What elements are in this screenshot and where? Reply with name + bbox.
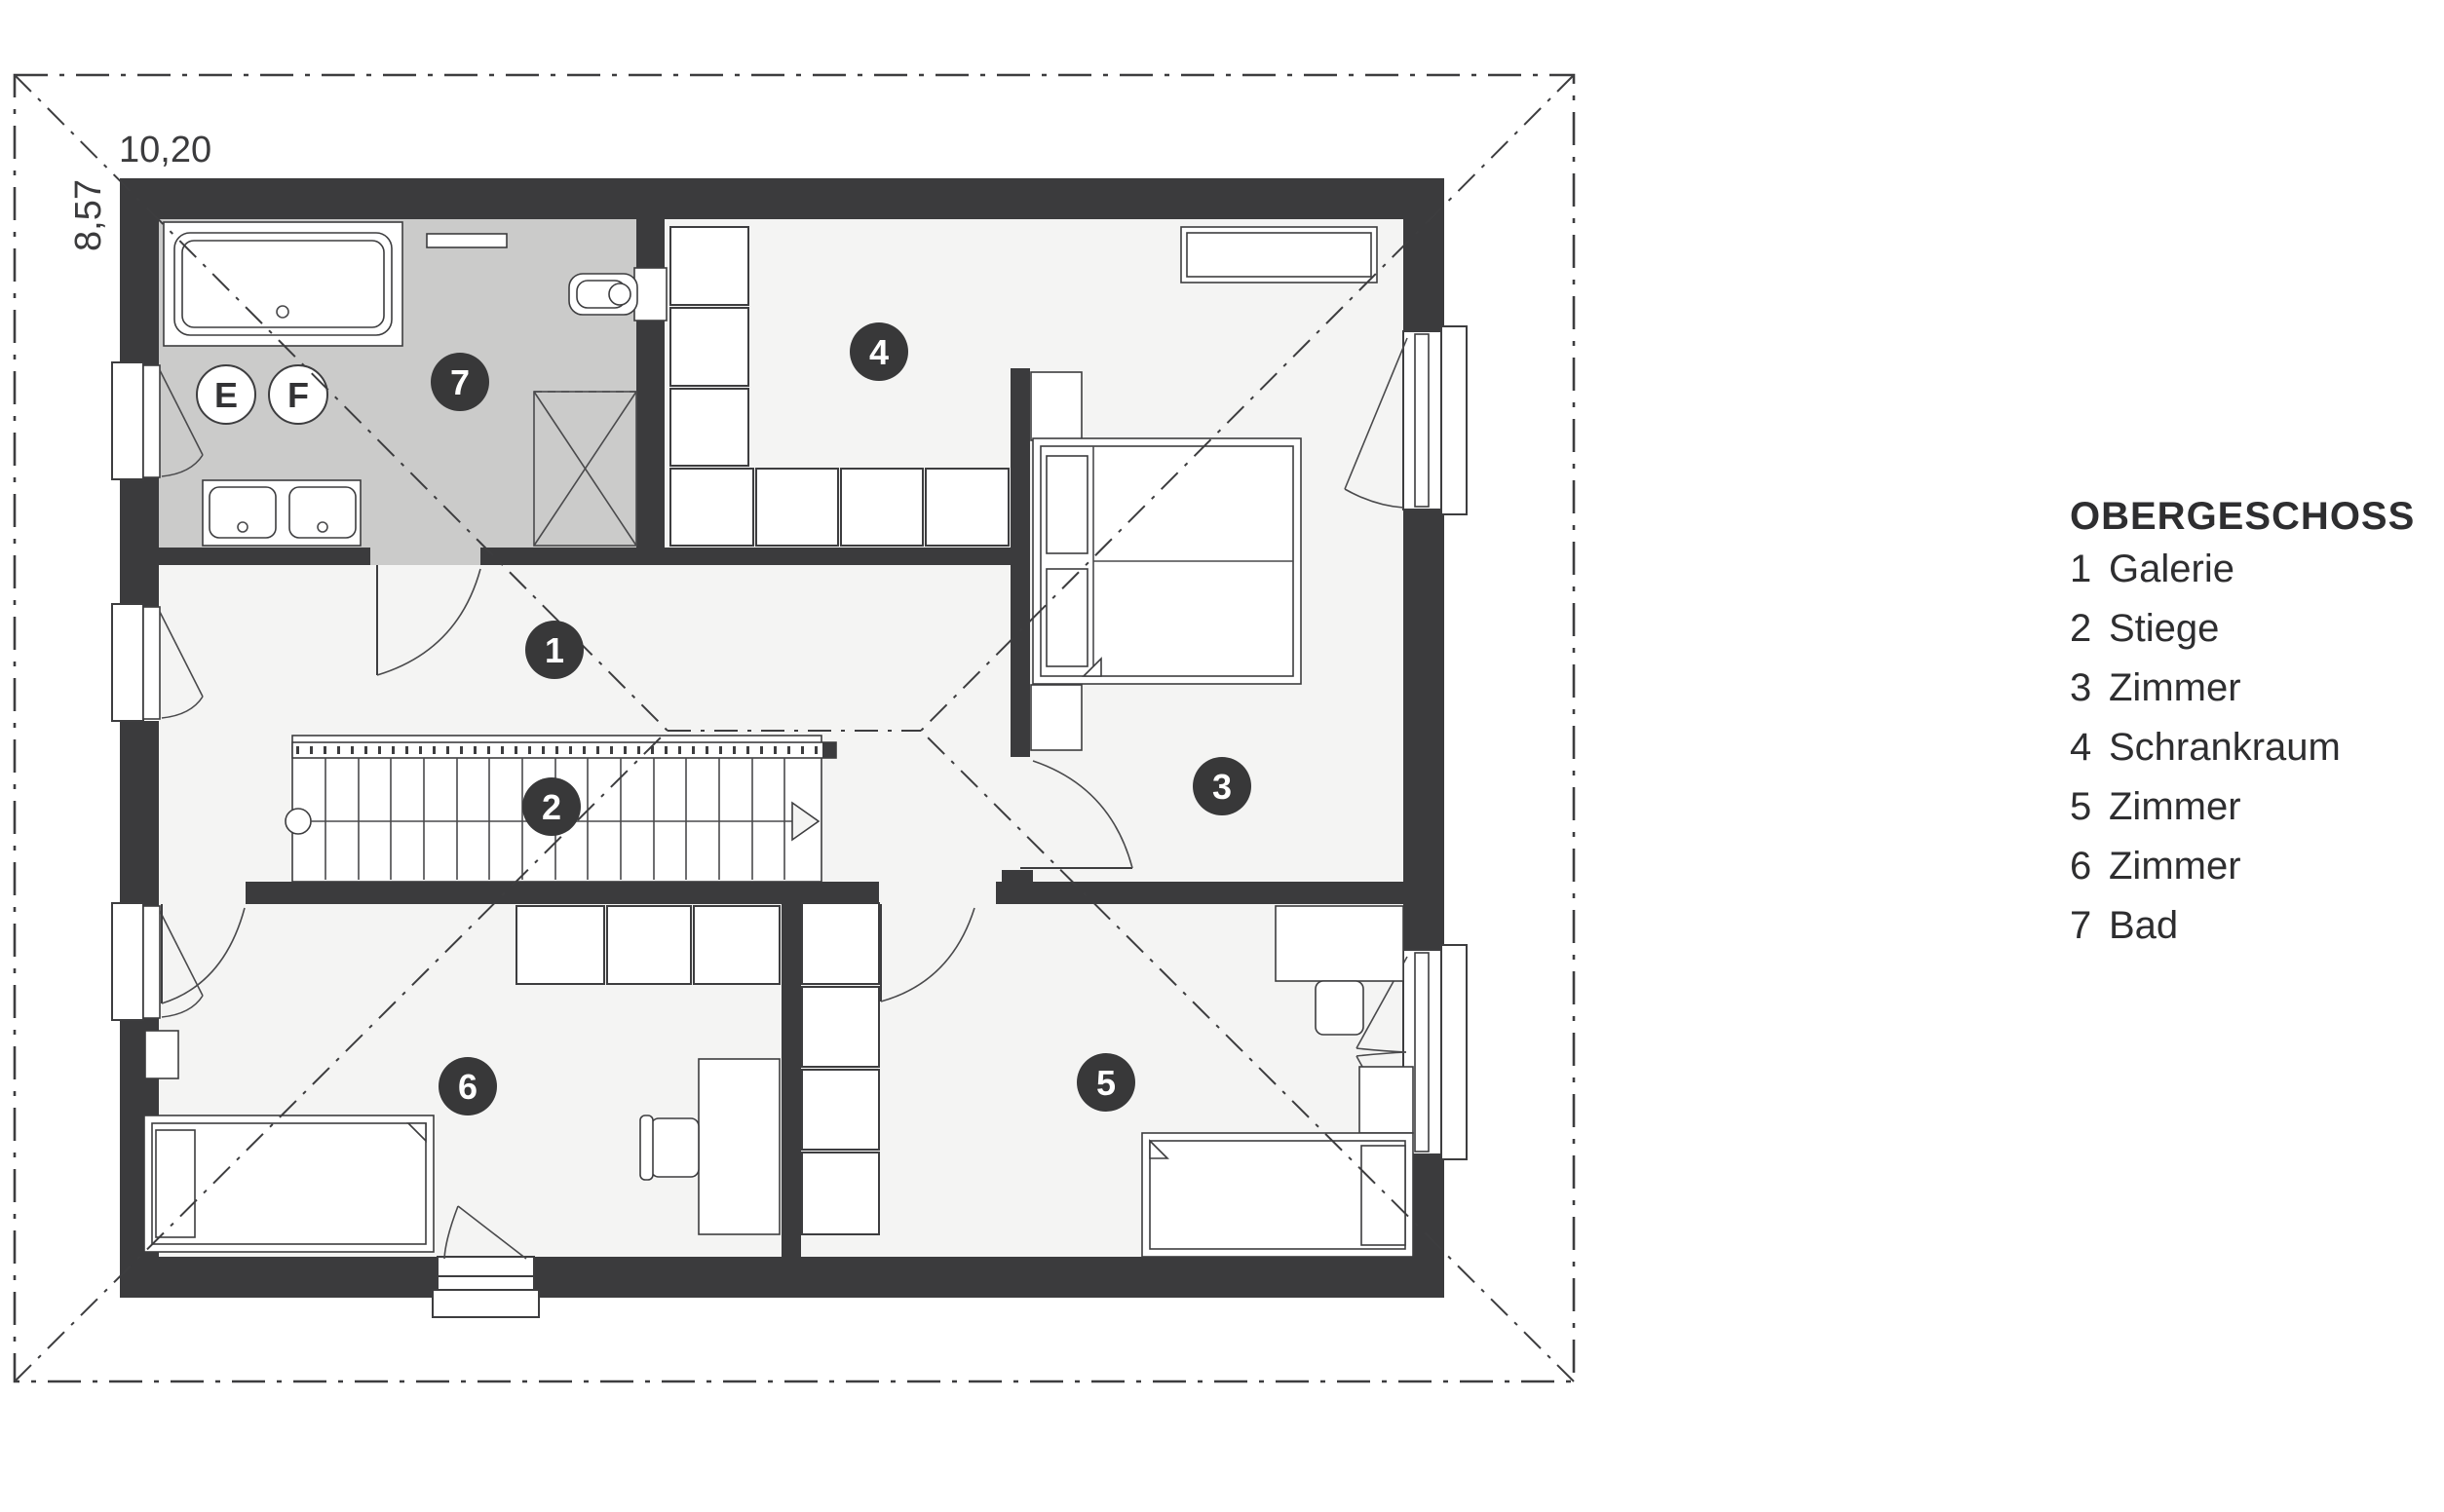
window-frame-inner: [1415, 334, 1429, 507]
single-bed: [144, 1115, 434, 1252]
room-marker-5-label: 5: [1096, 1063, 1116, 1103]
bathtub-basin: [182, 241, 384, 327]
window-frame: [438, 1257, 534, 1278]
shelf: [145, 1031, 178, 1078]
wall-stub-room3: [1011, 368, 1030, 757]
legend-item-label: Zimmer: [2109, 785, 2241, 828]
window-frame: [143, 607, 160, 719]
wall-bottom-2: [531, 1257, 1444, 1298]
window-sill: [1441, 945, 1467, 1159]
desk: [699, 1059, 780, 1234]
room-marker-6-label: 6: [458, 1067, 477, 1107]
room-marker-7: 7: [431, 353, 489, 411]
room-marker-4: 4: [850, 322, 908, 381]
legend-item-number: 3: [2070, 659, 2109, 718]
dimension-width: 10,20: [119, 130, 211, 170]
bed-pillow: [156, 1130, 195, 1237]
bed-pillow: [1047, 456, 1088, 553]
room-marker-1: 1: [525, 621, 584, 679]
legend-item-number: 5: [2070, 777, 2109, 837]
toilet: [569, 268, 667, 321]
nightstand: [1359, 1067, 1413, 1133]
room-marker-2-label: 2: [542, 787, 561, 827]
wall-left-2: [120, 477, 159, 607]
window-frame: [143, 906, 160, 1018]
legend-item-label: Schrankraum: [2109, 726, 2341, 769]
window-sill: [433, 1290, 539, 1317]
room-marker-3-label: 3: [1212, 767, 1232, 807]
legend-item-label: Zimmer: [2109, 666, 2241, 709]
window-sill: [112, 903, 143, 1020]
window-sill: [112, 604, 143, 721]
stair-railing: [292, 742, 836, 758]
legend-item-zimmer5: 5Zimmer: [2070, 777, 2415, 837]
wall-left-1: [120, 178, 159, 365]
legend-item-label: Bad: [2109, 904, 2178, 947]
legend-item-number: 7: [2070, 896, 2109, 956]
bed-pillow: [1361, 1146, 1405, 1245]
chair: [1316, 981, 1363, 1035]
legend-item-label: Galerie: [2109, 548, 2234, 590]
wall-stub-room3-b: [1002, 870, 1033, 904]
wall-mid-2: [996, 882, 1444, 904]
closet-cell: [670, 227, 748, 305]
closet-cell: [670, 308, 748, 386]
wardrobe-cell: [802, 1070, 879, 1150]
wardrobe-cell: [516, 906, 604, 984]
legend-item-label: Zimmer: [2109, 845, 2241, 888]
legend-item-zimmer3: 3Zimmer: [2070, 659, 2415, 718]
legend-item-galerie: 1Galerie: [2070, 540, 2415, 599]
dimension-height: 8,57: [68, 179, 109, 251]
sink-right: [289, 487, 356, 538]
bathroom-door-threshold: [370, 548, 480, 565]
legend-item-number: 4: [2070, 718, 2109, 777]
wall-left-3: [120, 721, 159, 906]
towel-rail: [427, 234, 507, 247]
chair: [651, 1118, 699, 1177]
floor-plan-drawing: E F: [0, 0, 1618, 1512]
floorplan-page: E F: [0, 0, 2444, 1512]
room-marker-3: 3: [1193, 757, 1251, 815]
room-marker-5: 5: [1077, 1053, 1135, 1112]
legend-item-bad: 7Bad: [2070, 896, 2415, 956]
wall-bottom-1: [120, 1257, 440, 1298]
window-frame-inner: [438, 1276, 534, 1290]
sideboard-inner: [1187, 233, 1371, 277]
wall-bath-bottom-1: [159, 548, 370, 565]
wall-mid-1: [246, 882, 879, 904]
railing-post: [822, 742, 836, 758]
wardrobe-cell: [694, 906, 780, 984]
room-marker-7-label: 7: [450, 362, 470, 402]
window-sill: [112, 362, 143, 479]
wardrobe-cell: [802, 903, 879, 984]
room-marker-2: 2: [522, 777, 581, 836]
wardrobe-cell: [802, 987, 879, 1067]
toilet-flush: [609, 283, 630, 305]
riser-e-label: E: [214, 375, 238, 415]
wardrobe-cell: [607, 906, 691, 984]
room-marker-4-label: 4: [869, 332, 889, 372]
wall-right-1: [1403, 178, 1444, 331]
wall-top: [120, 178, 1444, 219]
legend-item-label: Stiege: [2109, 607, 2219, 650]
double-bed: [1033, 438, 1301, 684]
desk: [1276, 906, 1403, 981]
chair-back: [640, 1115, 653, 1180]
stair-walkline-start: [286, 809, 311, 834]
riser-f-label: F: [287, 375, 309, 415]
closet-cell: [670, 469, 753, 546]
toilet-cistern-niche: [634, 268, 667, 321]
legend-item-schrankraum: 4Schrankraum: [2070, 718, 2415, 777]
window-sill: [1441, 326, 1467, 514]
legend: OBERGESCHOSS 1Galerie 2Stiege 3Zimmer 4S…: [2070, 493, 2415, 956]
legend-item-number: 2: [2070, 599, 2109, 659]
vanity-sinks: [203, 480, 361, 546]
closet-cell: [841, 469, 923, 546]
room-marker-6: 6: [439, 1057, 497, 1115]
legend-item-stiege: 2Stiege: [2070, 599, 2415, 659]
legend-item-number: 6: [2070, 837, 2109, 896]
wall-room6-room5: [782, 904, 801, 1257]
legend-item-zimmer6: 6Zimmer: [2070, 837, 2415, 896]
window-frame-inner: [1415, 953, 1429, 1152]
wardrobe-cell: [802, 1153, 879, 1234]
nightstand: [1031, 685, 1082, 750]
room-marker-1-label: 1: [545, 630, 564, 670]
sink-left: [210, 487, 276, 538]
closet-cell: [670, 389, 748, 466]
window-frame: [143, 365, 160, 477]
nightstand: [1031, 372, 1082, 440]
legend-item-number: 1: [2070, 540, 2109, 599]
closet-cell: [926, 469, 1009, 546]
wall-bath-bottom-2: [480, 548, 1011, 565]
single-bed: [1142, 1133, 1413, 1257]
closet-cell: [756, 469, 838, 546]
legend-title: OBERGESCHOSS: [2070, 493, 2415, 540]
bathtub: [164, 222, 402, 346]
